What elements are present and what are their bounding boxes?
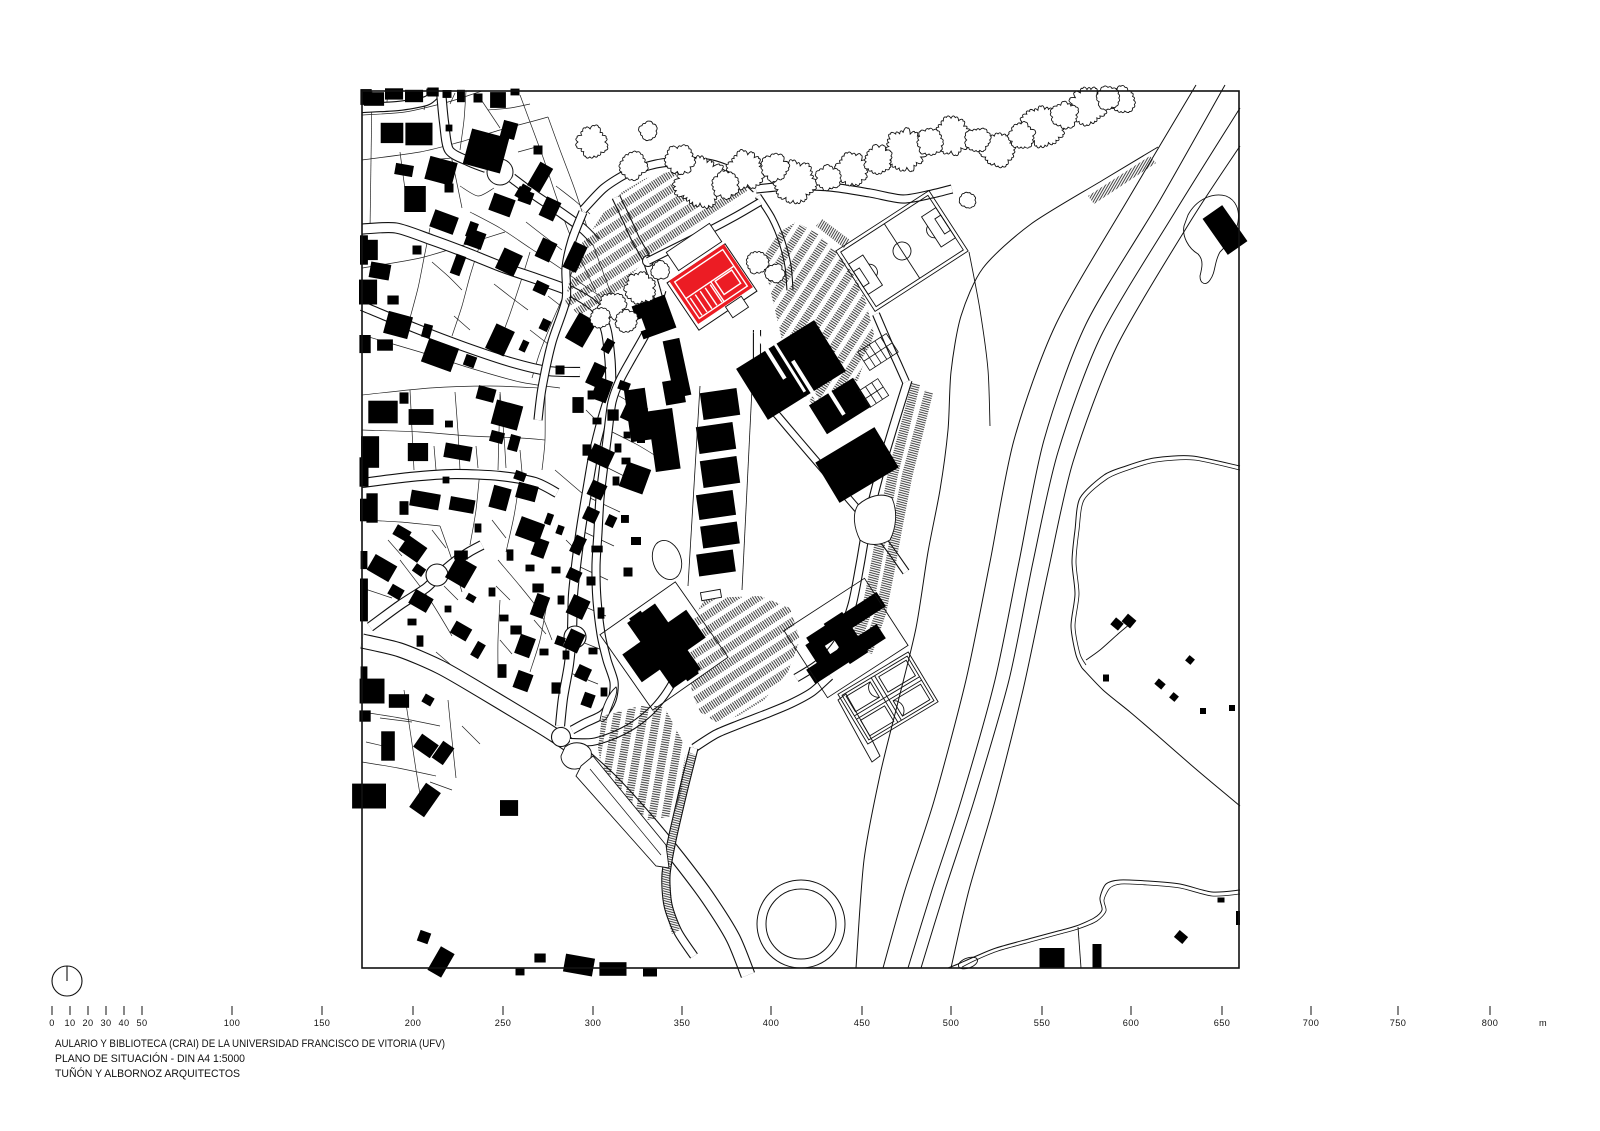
svg-text:TUÑÓN Y ALBORNOZ ARQUITECTOS: TUÑÓN Y ALBORNOZ ARQUITECTOS (55, 1067, 240, 1080)
svg-text:650: 650 (1214, 1018, 1231, 1028)
svg-text:550: 550 (1034, 1018, 1051, 1028)
svg-text:500: 500 (943, 1018, 960, 1028)
svg-text:40: 40 (118, 1018, 129, 1028)
svg-text:PLANO DE SITUACIÓN - DIN A4 1:: PLANO DE SITUACIÓN - DIN A4 1:5000 (55, 1052, 245, 1065)
svg-text:200: 200 (405, 1018, 422, 1028)
svg-text:100: 100 (224, 1018, 241, 1028)
svg-text:600: 600 (1123, 1018, 1140, 1028)
svg-text:800: 800 (1482, 1018, 1499, 1028)
svg-text:AULARIO Y BIBLIOTECA (CRAI) DE: AULARIO Y BIBLIOTECA (CRAI) DE LA UNIVER… (55, 1038, 445, 1050)
svg-text:150: 150 (314, 1018, 331, 1028)
svg-text:50: 50 (136, 1018, 147, 1028)
svg-text:250: 250 (495, 1018, 512, 1028)
svg-text:300: 300 (585, 1018, 602, 1028)
svg-text:450: 450 (854, 1018, 871, 1028)
svg-text:30: 30 (100, 1018, 111, 1028)
svg-text:750: 750 (1390, 1018, 1407, 1028)
svg-text:m: m (1539, 1018, 1547, 1028)
svg-text:350: 350 (674, 1018, 691, 1028)
svg-text:10: 10 (64, 1018, 75, 1028)
svg-text:20: 20 (82, 1018, 93, 1028)
svg-text:0: 0 (49, 1018, 55, 1028)
svg-text:400: 400 (763, 1018, 780, 1028)
svg-text:700: 700 (1303, 1018, 1320, 1028)
